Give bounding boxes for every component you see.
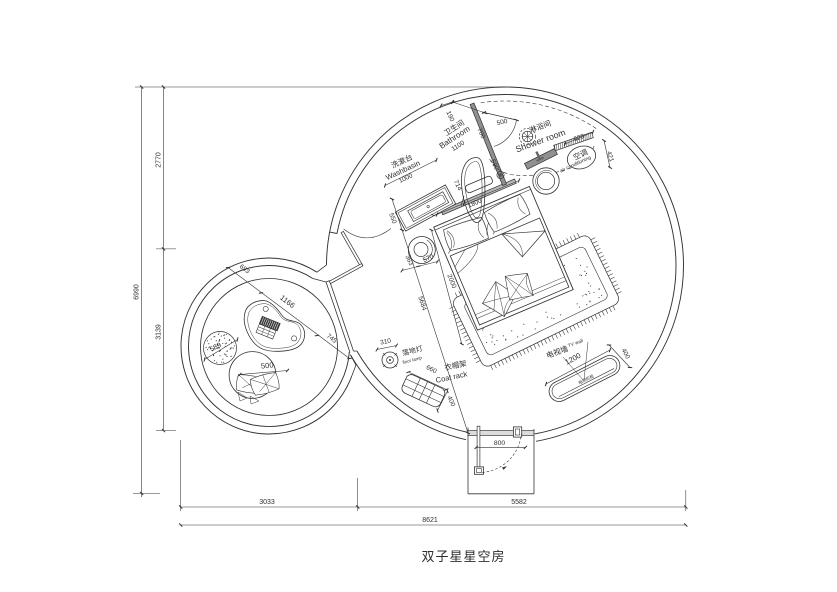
svg-text:5582: 5582 bbox=[511, 499, 527, 506]
svg-text:2770: 2770 bbox=[156, 152, 163, 168]
svg-text:800: 800 bbox=[494, 440, 506, 447]
svg-text:3033: 3033 bbox=[259, 499, 275, 506]
svg-text:500: 500 bbox=[261, 360, 274, 370]
svg-text:8621: 8621 bbox=[422, 517, 438, 524]
svg-text:3139: 3139 bbox=[156, 324, 163, 340]
svg-text:6990: 6990 bbox=[134, 284, 141, 300]
svg-text:双子星星空房: 双子星星空房 bbox=[421, 549, 505, 564]
